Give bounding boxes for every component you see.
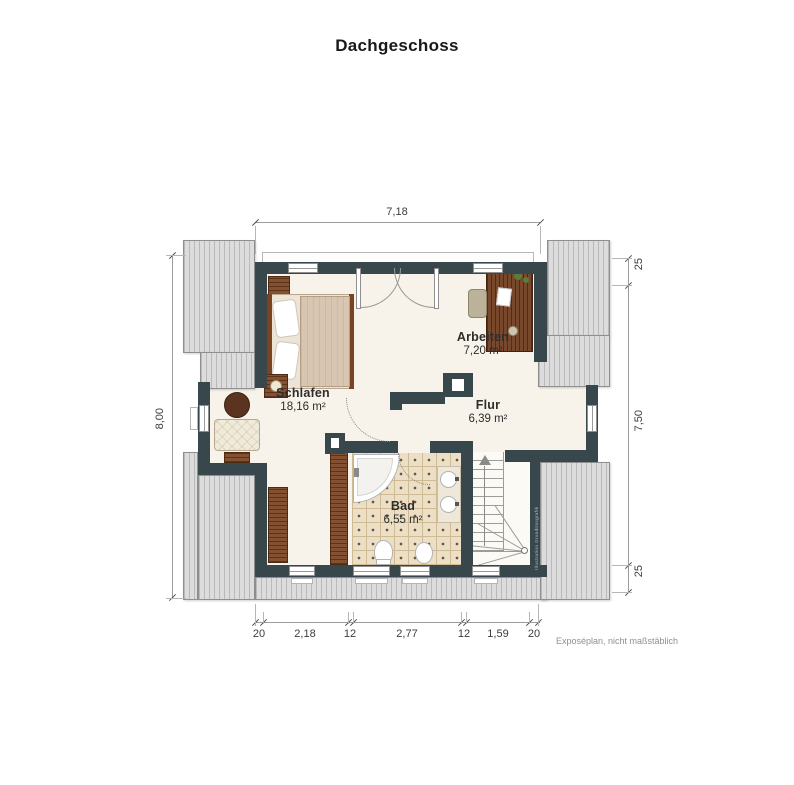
wall-bath-right: [461, 441, 473, 577]
extension-line: [540, 226, 541, 254]
stairs-up-arrow-icon: [479, 455, 491, 465]
round-side-table: [224, 392, 250, 418]
french-door-right-leaf: [434, 268, 439, 309]
window-top-left: [288, 263, 318, 273]
window-bottom-bath-2: [400, 566, 430, 576]
watermark: Illustration Grundrissgrafik: [534, 498, 539, 570]
extension-line: [538, 604, 539, 626]
extension-line: [612, 592, 632, 593]
dimension-label-bottom-6: 20: [528, 628, 540, 640]
wall-right-upper: [534, 262, 547, 362]
roof-area-bottom-left: [198, 475, 255, 600]
dimension-label-bottom-1: 2,18: [294, 628, 315, 640]
page-title: Dachgeschoss: [0, 36, 794, 56]
dimension-line-left: [172, 255, 173, 598]
dimension-label-left: 8,00: [154, 408, 166, 429]
roof-area-top-left: [183, 240, 255, 353]
room-area: 7,20 m²: [457, 345, 509, 359]
room-name: Schlafen: [276, 386, 330, 401]
dimension-line-bottom: [255, 622, 540, 623]
extension-line: [348, 612, 349, 624]
stairs-arrow-stem: [484, 466, 485, 546]
dimension-label-top: 7,18: [386, 206, 407, 218]
extension-line: [461, 612, 462, 624]
window-sill: [291, 578, 313, 584]
dimension-label-right-1: 7,50: [633, 410, 645, 431]
dimension-line-right: [628, 258, 629, 593]
room-name: Flur: [469, 398, 508, 413]
extension-line: [166, 598, 186, 599]
armchair: [214, 419, 260, 451]
chimney-core: [452, 379, 464, 391]
window-bottom-bath-1: [353, 566, 390, 576]
room-label-arbeiten: Arbeiten 7,20 m²: [457, 330, 509, 358]
extension-line: [529, 612, 530, 624]
wardrobe-right: [330, 452, 348, 565]
chimney-core: [331, 438, 339, 448]
room-label-schlafen: Schlafen 18,16 m²: [276, 386, 330, 414]
wall-left-upper: [255, 262, 267, 388]
room-name: Arbeiten: [457, 330, 509, 345]
roof-area-bottom-right: [540, 462, 610, 600]
bed-pillow: [272, 299, 301, 339]
room-area: 18,16 m²: [276, 401, 330, 415]
faucet-icon: [455, 502, 459, 506]
extension-line: [466, 612, 467, 624]
window-bottom-dressing: [289, 566, 315, 576]
room-label-bad: Bad 6,55 m²: [384, 499, 423, 527]
room-name: Bad: [384, 499, 423, 514]
winder-line: [470, 551, 526, 552]
room-area: 6,55 m²: [384, 514, 423, 528]
wall-bath-top-left: [340, 441, 398, 453]
roof-area-top-right-step: [538, 335, 610, 387]
wall-dressing-left: [255, 463, 267, 573]
bed-duvet: [300, 296, 350, 387]
desk-chair: [468, 289, 487, 318]
roof-area-bottom-left-outer: [183, 452, 198, 600]
extension-line: [353, 612, 354, 624]
dimension-label-right-2: 25: [633, 565, 645, 577]
stairs-newel-post: [521, 547, 528, 554]
dimension-label-bottom-4: 12: [458, 628, 470, 640]
extension-line: [255, 226, 256, 254]
faucet-icon: [455, 477, 459, 481]
dimension-label-bottom-2: 12: [344, 628, 356, 640]
wardrobe-left: [268, 487, 288, 563]
window-left-sill: [190, 407, 198, 430]
footnote: Exposéplan, nicht maßstäblich: [556, 636, 678, 646]
extension-line: [612, 285, 632, 286]
dimension-label-bottom-3: 2,77: [396, 628, 417, 640]
window-top-right: [473, 263, 503, 273]
dimension-tick: [537, 219, 544, 226]
nightstand-top: [268, 276, 290, 296]
roof-area-top-right: [547, 240, 610, 336]
bathtub-faucet: [354, 468, 359, 477]
window-sill: [355, 578, 388, 584]
bidet: [415, 542, 433, 564]
window-left: [199, 405, 209, 432]
extension-line: [612, 258, 632, 259]
window-sill: [474, 578, 498, 584]
dimension-label-bottom-5: 1,59: [487, 628, 508, 640]
desk-papers: [496, 287, 512, 307]
bench: [224, 452, 250, 463]
extension-line: [255, 604, 256, 626]
dimension-label-bottom-0: 20: [253, 628, 265, 640]
room-area: 6,39 m²: [469, 413, 508, 427]
wall-right-lower-jog: [505, 450, 598, 462]
extension-line: [166, 255, 186, 256]
extension-line: [612, 565, 632, 566]
desk-plant: [523, 277, 529, 283]
wall-left-lower-jog: [198, 463, 258, 475]
wall-flur-divider-stub: [390, 392, 402, 410]
dimension-line-top: [255, 222, 540, 223]
window-sill: [402, 578, 428, 584]
window-right: [587, 405, 597, 432]
extension-line: [263, 612, 264, 624]
dimension-label-right-0: 25: [633, 258, 645, 270]
room-label-flur: Flur 6,39 m²: [469, 398, 508, 426]
desk-cup: [508, 326, 518, 336]
window-bottom-stairs: [472, 566, 500, 576]
